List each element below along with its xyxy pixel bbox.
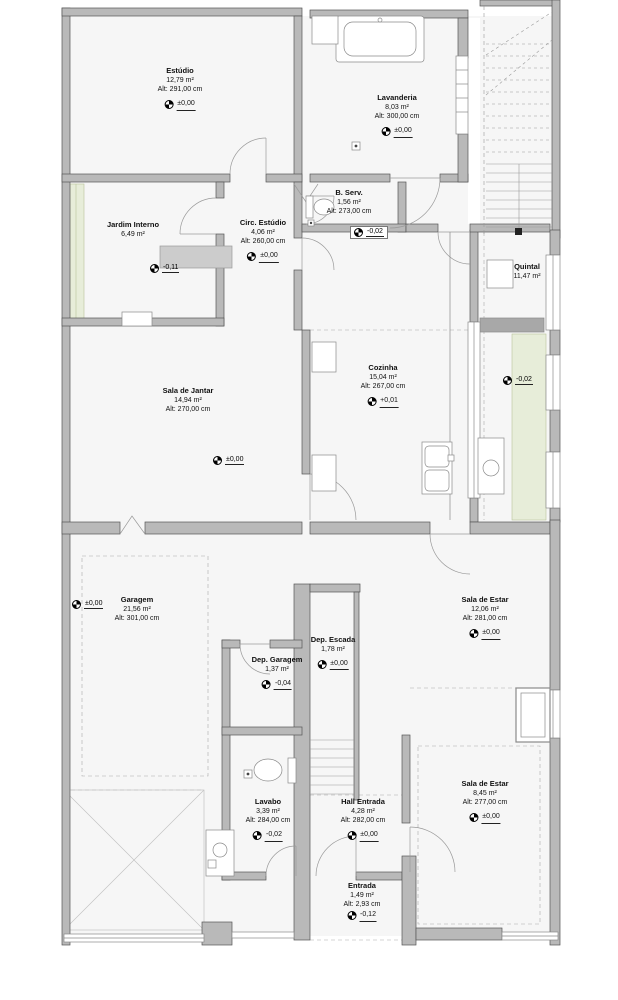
level-marker-icon (247, 252, 256, 261)
outdoor-sink-icon (478, 438, 504, 494)
toilet-icon (254, 758, 296, 783)
level-marker: -0,02 (503, 376, 533, 385)
level-marker: ±0,00 (213, 456, 244, 465)
kitchen-cabinet-icon (312, 455, 336, 491)
level-marker-icon (262, 680, 271, 689)
floor-drain-icon (308, 220, 314, 226)
room-area: 15,04 m² (361, 373, 406, 382)
level-marker: -0,02 (253, 830, 283, 841)
room-name: Sala de Jantar (163, 386, 214, 396)
level-marker: -0,04 (262, 679, 292, 690)
room-label-lavanderia: Lavanderia 8,03 m² Alt: 300,00 cm ±0,00 (375, 93, 420, 140)
level-value: ±0,00 (176, 99, 195, 110)
level-marker-icon (469, 813, 478, 822)
room-name: Quintal (513, 262, 540, 272)
level-marker: ±0,00 (164, 99, 195, 110)
level-marker-icon (347, 831, 356, 840)
room-name: Cozinha (361, 363, 406, 373)
room-ceiling-height: Alt: 270,00 cm (163, 405, 214, 414)
floor-plan: Estúdio 12,79 m² Alt: 291,00 cm ±0,00 La… (0, 0, 618, 1000)
room-name: Entrada (344, 881, 381, 891)
room-ceiling-height: Alt: 277,00 cm (461, 798, 508, 807)
level-value: ±0,00 (393, 126, 412, 137)
room-label-sala-de-estar-1: Sala de Estar 12,06 m² Alt: 281,00 cm ±0… (461, 595, 508, 642)
laundry-sink-icon (336, 16, 424, 62)
room-name: Lavanderia (375, 93, 420, 103)
room-name: Lavabo (246, 797, 291, 807)
washbasin-icon (206, 830, 234, 876)
room-name: Jardim Interno (107, 220, 159, 230)
level-value: -0,12 (359, 910, 377, 921)
room-label-dep-garagem: Dep. Garagem 1,37 m² -0,04 (252, 655, 303, 692)
kitchen-sink-icon (422, 442, 454, 494)
outdoor-box-icon (487, 260, 513, 288)
garden-gate-icon (122, 312, 152, 326)
room-ceiling-height: Alt: 301,00 cm (115, 614, 160, 623)
room-label-jardim-interno: Jardim Interno 6,49 m² (107, 220, 159, 239)
level-value: -0,11 (162, 264, 179, 273)
room-label-sala-de-jantar: Sala de Jantar 14,94 m² Alt: 270,00 cm (163, 386, 214, 414)
level-marker: ±0,00 (347, 830, 378, 841)
room-ceiling-height: Alt: 267,00 cm (361, 382, 406, 391)
room-label-cozinha: Cozinha 15,04 m² Alt: 267,00 cm +0,01 (361, 363, 406, 410)
level-marker: ±0,00 (469, 628, 500, 639)
room-label-dep-escada: Dep. Escada 1,78 m² ±0,00 (311, 635, 356, 672)
level-marker-icon (317, 660, 326, 669)
room-name: Dep. Escada (311, 635, 356, 645)
room-label-lavabo: Lavabo 3,39 m² Alt: 284,00 cm -0,02 (246, 797, 291, 844)
room-ceiling-height: Alt: 282,00 cm (341, 816, 386, 825)
level-marker-icon (469, 629, 478, 638)
room-area: 8,03 m² (375, 103, 420, 112)
room-name: Dep. Garagem (252, 655, 303, 665)
room-area: 12,79 m² (158, 76, 203, 85)
level-value: ±0,00 (481, 812, 500, 823)
level-marker: -0,11 (150, 264, 179, 273)
level-value: -0,02 (366, 228, 384, 237)
room-area: 1,56 m² (327, 198, 372, 207)
level-marker: +0,01 (367, 396, 399, 407)
level-marker: ±0,00 (381, 126, 412, 137)
level-value: ±0,00 (84, 600, 103, 609)
room-name: Sala de Estar (461, 779, 508, 789)
level-marker-icon (367, 397, 376, 406)
room-label-entrada: Entrada 1,49 m² Alt: 2,93 cm -0,12 (344, 881, 381, 924)
level-marker: ±0,00 (247, 251, 278, 262)
level-value: +0,01 (379, 396, 399, 407)
floor-drain-icon (244, 770, 252, 778)
room-area: 1,49 m² (344, 891, 381, 900)
level-marker-icon (381, 127, 390, 136)
room-ceiling-height: Alt: 291,00 cm (158, 85, 203, 94)
level-value: ±0,00 (225, 456, 244, 465)
level-marker-icon (150, 264, 159, 273)
level-marker: ±0,00 (72, 600, 103, 609)
room-label-sala-de-estar-2: Sala de Estar 8,45 m² Alt: 277,00 cm ±0,… (461, 779, 508, 826)
room-ceiling-height: Alt: 300,00 cm (375, 112, 420, 121)
room-area: 3,39 m² (246, 807, 291, 816)
room-area: 14,94 m² (163, 396, 214, 405)
floor-drain-icon (352, 142, 360, 150)
level-value: ±0,00 (481, 628, 500, 639)
level-marker: -0,12 (347, 910, 377, 921)
room-label-quintal: Quintal 11,47 m² (513, 262, 540, 281)
room-area: 11,47 m² (513, 272, 540, 281)
level-value: -0,04 (274, 679, 292, 690)
level-value: ±0,00 (259, 251, 278, 262)
room-area: 12,06 m² (461, 605, 508, 614)
room-label-estudio: Estúdio 12,79 m² Alt: 291,00 cm ±0,00 (158, 66, 203, 113)
room-area: 8,45 m² (461, 789, 508, 798)
room-name: Hall Entrada (341, 797, 386, 807)
level-value: ±0,00 (359, 830, 378, 841)
room-name: Estúdio (158, 66, 203, 76)
level-marker-icon (213, 456, 222, 465)
level-value: -0,02 (265, 830, 283, 841)
room-label-hall-entrada: Hall Entrada 4,28 m² Alt: 282,00 cm ±0,0… (341, 797, 386, 844)
room-area: 1,37 m² (252, 665, 303, 674)
room-ceiling-height: Alt: 260,00 cm (240, 237, 286, 246)
room-label-garagem: Garagem 21,56 m² Alt: 301,00 cm (115, 595, 160, 623)
level-marker: ±0,00 (469, 812, 500, 823)
kitchen-cabinet-icon (312, 342, 336, 372)
room-name: Sala de Estar (461, 595, 508, 605)
room-name: Garagem (115, 595, 160, 605)
room-name: B. Serv. (327, 188, 372, 198)
room-ceiling-height: Alt: 2,93 cm (344, 900, 381, 909)
level-marker-icon (164, 100, 173, 109)
room-label-b-serv: B. Serv. 1,56 m² Alt: 273,00 cm (327, 188, 372, 216)
level-marker: ±0,00 (317, 659, 348, 670)
level-marker-icon (354, 228, 363, 237)
level-marker-icon (253, 831, 262, 840)
level-marker-icon (503, 376, 512, 385)
room-ceiling-height: Alt: 281,00 cm (461, 614, 508, 623)
level-marker-icon (347, 911, 356, 920)
room-area: 6,49 m² (107, 230, 159, 239)
wall-niche-icon (516, 688, 550, 742)
laundry-cabinet-icon (312, 16, 338, 44)
room-area: 21,56 m² (115, 605, 160, 614)
room-ceiling-height: Alt: 273,00 cm (327, 207, 372, 216)
room-area: 4,06 m² (240, 228, 286, 237)
level-value: -0,02 (515, 376, 533, 385)
room-area: 1,78 m² (311, 645, 356, 654)
floor-plan-drawing (0, 0, 618, 1000)
level-marker-icon (72, 600, 81, 609)
level-value: ±0,00 (329, 659, 348, 670)
room-name: Circ. Estúdio (240, 218, 286, 228)
level-marker: -0,02 (350, 226, 388, 239)
room-area: 4,28 m² (341, 807, 386, 816)
room-ceiling-height: Alt: 284,00 cm (246, 816, 291, 825)
room-label-circ-estudio: Circ. Estúdio 4,06 m² Alt: 260,00 cm ±0,… (240, 218, 286, 265)
